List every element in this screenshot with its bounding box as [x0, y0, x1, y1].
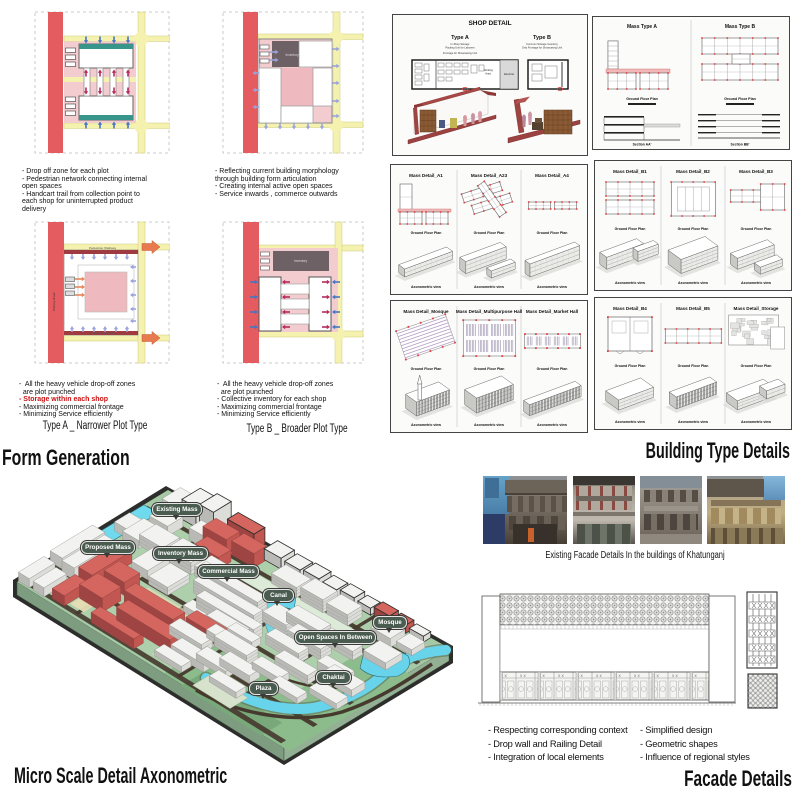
svg-text:Mass Detail_Market Hall: Mass Detail_Market Hall [526, 309, 578, 314]
svg-text:Working: Working [483, 68, 493, 72]
svg-text:Frontage for Showcasing Unit: Frontage for Showcasing Unit [443, 51, 477, 55]
svg-text:Mass Detail_Storage: Mass Detail_Storage [734, 306, 779, 311]
svg-text:Ground Floor Plan: Ground Floor Plan [537, 231, 568, 235]
svg-text:Section AA': Section AA' [633, 143, 652, 147]
svg-text:Mass Detail_A23: Mass Detail_A23 [471, 173, 508, 178]
svg-text:Electrical: Electrical [504, 73, 514, 76]
svg-text:Ground Floor Plan: Ground Floor Plan [537, 367, 568, 371]
svg-text:Ground Floor Plan: Ground Floor Plan [741, 227, 772, 231]
svg-text:Ground Floor Plan: Ground Floor Plan [615, 227, 646, 231]
svg-text:Mass Detail_B5: Mass Detail_B5 [676, 306, 710, 311]
svg-text:Pedestrian Walkway: Pedestrian Walkway [89, 331, 117, 335]
svg-text:Section BB': Section BB' [731, 143, 750, 147]
svg-text:Ground Floor Plan: Ground Floor Plan [724, 97, 756, 101]
svg-text:Ground Floor Plan: Ground Floor Plan [678, 227, 709, 231]
svg-text:Inventory: Inventory [286, 53, 300, 57]
svg-text:Axonometric view: Axonometric view [411, 285, 441, 289]
svg-text:Ground Floor Plan: Ground Floor Plan [741, 364, 772, 368]
svg-text:Mass Detail_A4: Mass Detail_A4 [535, 173, 569, 178]
svg-text:SHOP DETAIL: SHOP DETAIL [468, 20, 511, 27]
svg-text:Packing Unit for Laborers: Packing Unit for Laborers [445, 46, 475, 50]
svg-text:Mass Detail_Mosque: Mass Detail_Mosque [403, 309, 449, 314]
svg-text:Ground Floor Plan: Ground Floor Plan [411, 231, 442, 235]
svg-text:Inventory: Inventory [294, 259, 308, 263]
svg-text:Axonometric view: Axonometric view [741, 420, 771, 424]
svg-text:Pedestrian Walkway: Pedestrian Walkway [89, 246, 117, 250]
svg-text:Ground Floor Plan: Ground Floor Plan [411, 367, 442, 371]
svg-text:Mass Detail_B4: Mass Detail_B4 [613, 306, 647, 311]
svg-text:Axonometric view: Axonometric view [474, 423, 504, 427]
svg-text:Axonometric view: Axonometric view [474, 285, 504, 289]
svg-text:Ground Floor Plan: Ground Floor Plan [615, 364, 646, 368]
svg-text:Axonometric view: Axonometric view [615, 281, 645, 285]
svg-text:Primary Road: Primary Road [52, 292, 56, 311]
svg-text:In-Shop Storage: In-Shop Storage [451, 42, 470, 46]
svg-text:Axonometric view: Axonometric view [741, 281, 771, 285]
svg-text:Ground Floor Plan: Ground Floor Plan [678, 364, 709, 368]
svg-text:Mass Detail_B1: Mass Detail_B1 [613, 169, 647, 174]
svg-text:Mass Detail_A1: Mass Detail_A1 [409, 173, 443, 178]
svg-text:Area: Area [485, 72, 491, 76]
svg-text:Ground Floor Plan: Ground Floor Plan [474, 367, 505, 371]
svg-text:Mass Type B: Mass Type B [725, 24, 756, 30]
svg-text:Type A: Type A [451, 35, 469, 41]
svg-text:Ground Floor Plan: Ground Floor Plan [474, 231, 505, 235]
svg-text:Common Storage Inventory: Common Storage Inventory [526, 42, 558, 46]
svg-text:Axonometric view: Axonometric view [537, 423, 567, 427]
svg-text:Axonometric view: Axonometric view [615, 420, 645, 424]
svg-text:Mass Detail_Multipurpose Hall: Mass Detail_Multipurpose Hall [456, 309, 522, 314]
svg-text:Axonometric view: Axonometric view [537, 285, 567, 289]
svg-text:Only Frontage for Showcasing U: Only Frontage for Showcasing Unit [522, 46, 563, 50]
svg-text:Axonometric view: Axonometric view [411, 423, 441, 427]
svg-text:Ground Floor Plan: Ground Floor Plan [626, 97, 658, 101]
svg-text:Mass Type A: Mass Type A [627, 24, 657, 30]
svg-text:Axonometric view: Axonometric view [678, 420, 708, 424]
svg-text:Mass Detail_B3: Mass Detail_B3 [739, 169, 773, 174]
svg-text:Type B: Type B [533, 35, 551, 41]
svg-text:Axonometric view: Axonometric view [678, 281, 708, 285]
svg-text:Mass Detail_B2: Mass Detail_B2 [676, 169, 710, 174]
